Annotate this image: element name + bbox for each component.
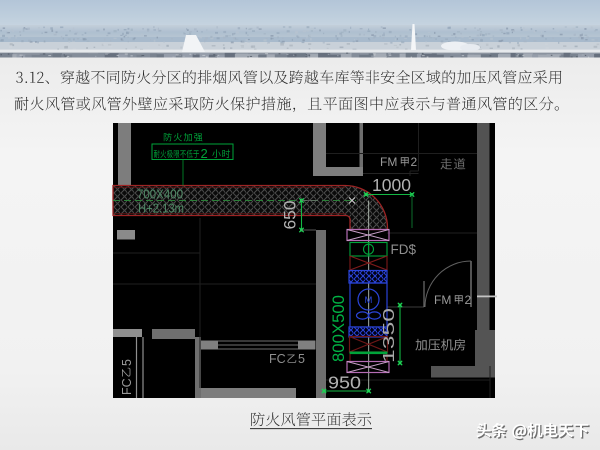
- svg-text:FD$: FD$: [391, 242, 417, 257]
- svg-text:2: 2: [411, 155, 418, 169]
- svg-text:700X400: 700X400: [137, 187, 183, 202]
- svg-text:M: M: [365, 295, 373, 306]
- svg-text:2: 2: [201, 146, 208, 161]
- svg-text:FM: FM: [380, 155, 397, 169]
- svg-text:FC: FC: [269, 352, 286, 366]
- svg-text:950: 950: [328, 373, 361, 393]
- svg-text:800X500: 800X500: [330, 295, 348, 362]
- svg-text:H+2.13m: H+2.13m: [138, 201, 184, 216]
- svg-text:2: 2: [465, 293, 472, 307]
- svg-text:650: 650: [281, 201, 300, 230]
- svg-text:1000: 1000: [372, 175, 411, 195]
- svg-text:FM: FM: [434, 293, 451, 307]
- svg-text:5: 5: [120, 359, 134, 366]
- svg-text:FC: FC: [120, 378, 134, 395]
- svg-text:1350: 1350: [381, 308, 398, 363]
- svg-text:5: 5: [298, 352, 305, 366]
